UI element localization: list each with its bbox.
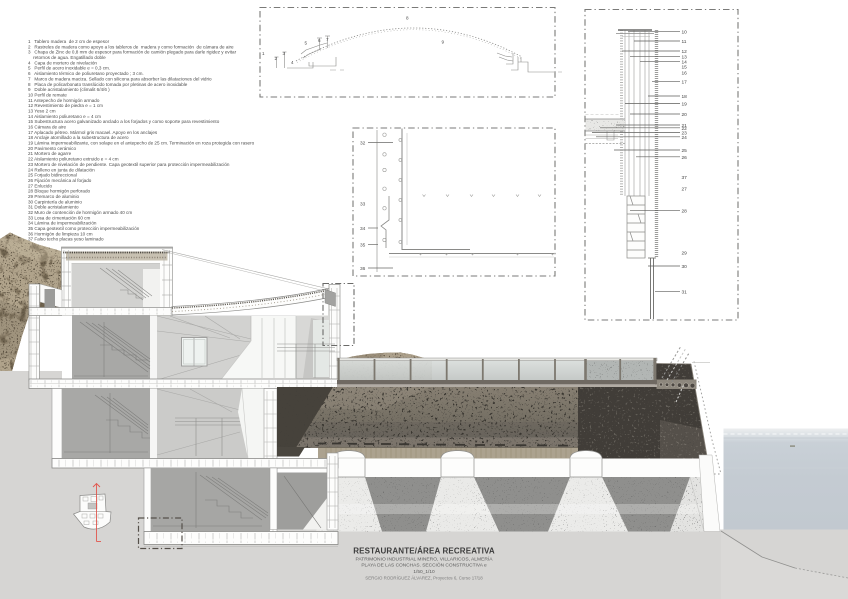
svg-text:8: 8 xyxy=(406,16,409,21)
svg-text:37: 37 xyxy=(682,175,688,181)
svg-text:20: 20 xyxy=(682,112,688,118)
svg-text:11: 11 xyxy=(682,39,687,45)
svg-text:36: 36 xyxy=(360,266,366,272)
svg-text:5: 5 xyxy=(305,41,308,46)
svg-text:9: 9 xyxy=(442,40,445,45)
svg-text:28: 28 xyxy=(682,209,688,215)
svg-text:34: 34 xyxy=(360,226,366,232)
svg-text:19: 19 xyxy=(682,101,688,107)
svg-text:7: 7 xyxy=(326,37,329,42)
svg-text:6: 6 xyxy=(318,38,321,43)
svg-text:12: 12 xyxy=(682,49,688,55)
svg-text:25: 25 xyxy=(682,148,688,154)
svg-text:4: 4 xyxy=(291,60,294,65)
svg-text:27: 27 xyxy=(682,187,688,193)
svg-text:24: 24 xyxy=(682,135,688,141)
svg-text:16: 16 xyxy=(682,71,688,77)
svg-text:31: 31 xyxy=(682,290,688,296)
svg-text:29: 29 xyxy=(682,251,688,257)
svg-text:26: 26 xyxy=(682,155,688,161)
svg-text:10: 10 xyxy=(682,30,688,36)
svg-text:17: 17 xyxy=(682,80,688,86)
svg-text:3: 3 xyxy=(283,51,286,56)
svg-text:30: 30 xyxy=(682,264,688,270)
svg-text:35: 35 xyxy=(360,243,366,249)
svg-text:18: 18 xyxy=(682,94,688,100)
svg-text:33: 33 xyxy=(360,202,366,208)
svg-text:15: 15 xyxy=(682,65,688,71)
svg-text:2: 2 xyxy=(275,56,278,61)
svg-text:32: 32 xyxy=(360,141,366,147)
